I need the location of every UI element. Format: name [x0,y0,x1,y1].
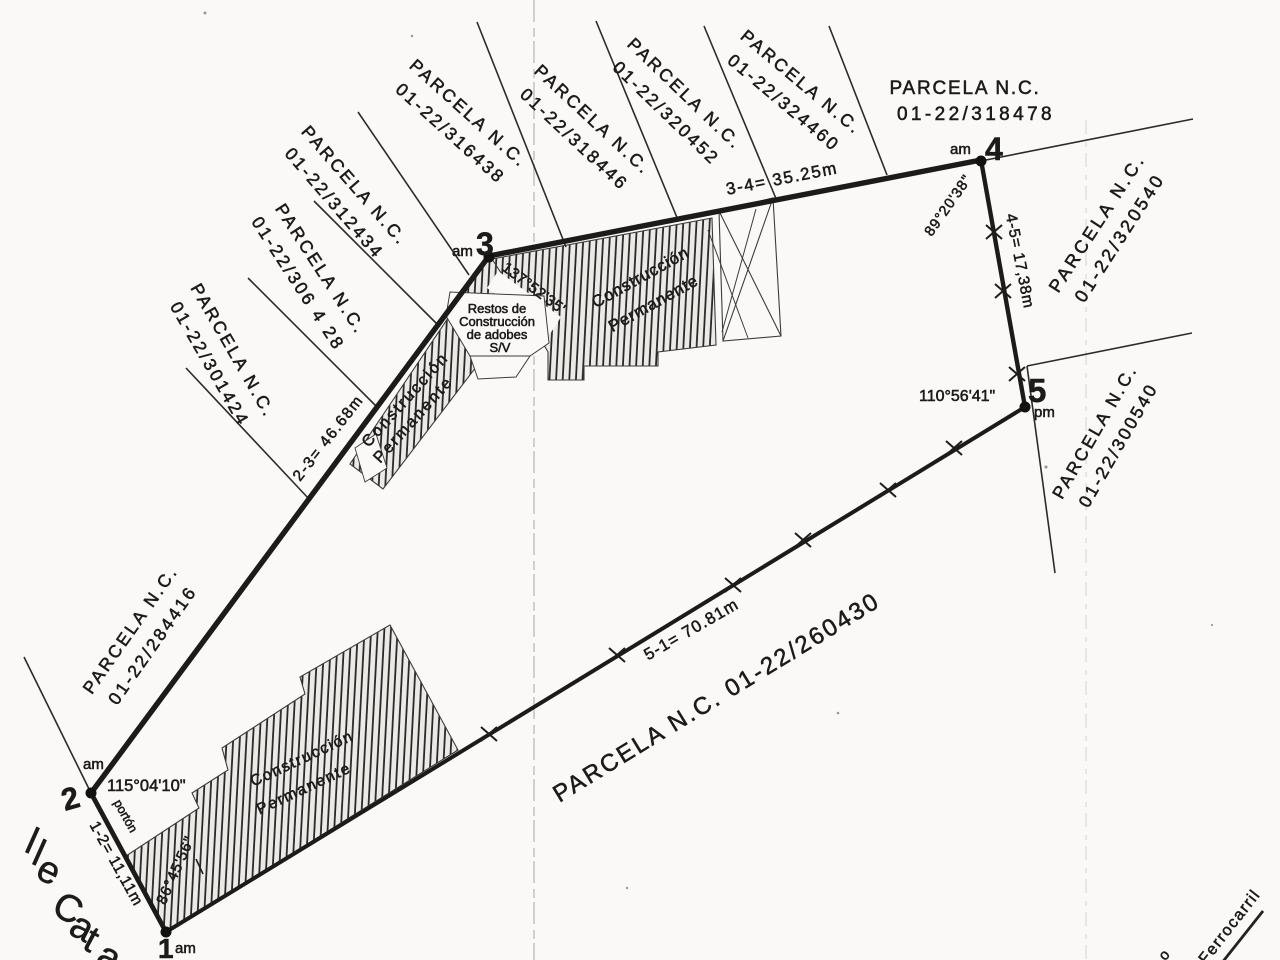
svg-text:110°56'41": 110°56'41" [919,388,995,405]
svg-text:am: am [175,940,196,957]
svg-text:115°04'10": 115°04'10" [107,777,186,795]
svg-text:am: am [83,756,104,773]
svg-text:am: am [452,243,473,260]
svg-text:4: 4 [985,131,1003,167]
svg-text:1: 1 [158,933,174,960]
svg-text:PARCELA N.C.: PARCELA N.C. [889,78,1040,99]
svg-text:pm: pm [1034,404,1055,421]
svg-text:S/V: S/V [490,340,511,355]
svg-text:am: am [950,141,971,158]
svg-text:01-22/318478: 01-22/318478 [897,104,1055,125]
svg-text:3: 3 [476,226,494,262]
